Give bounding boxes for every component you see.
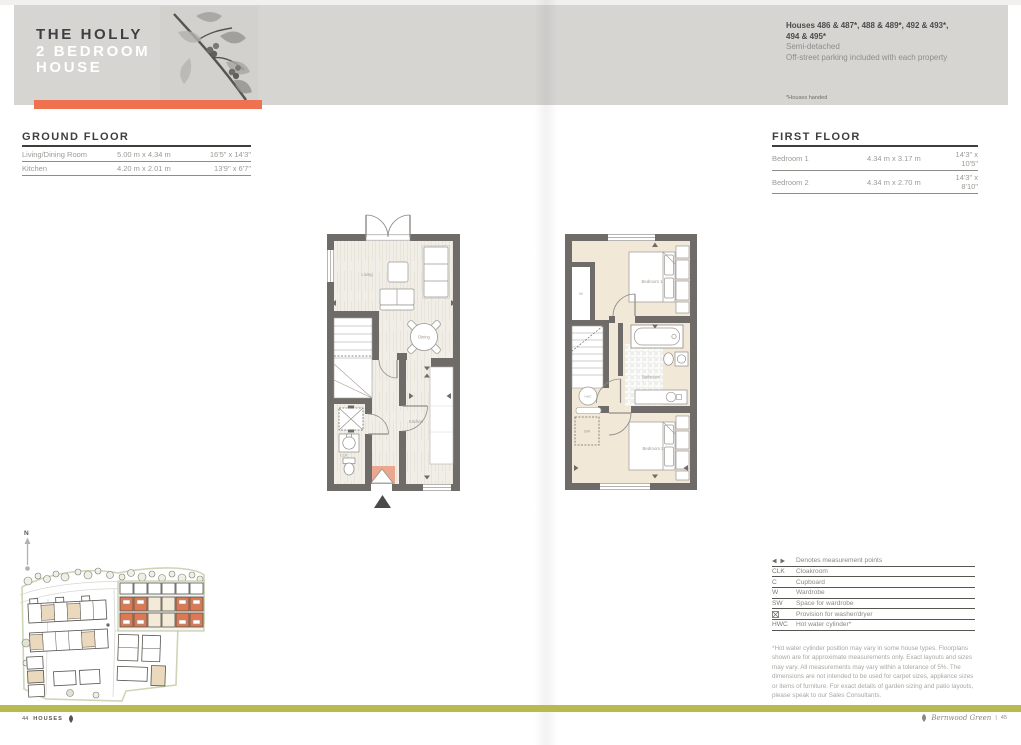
coffee-table xyxy=(388,262,408,282)
kitchen-label: Kitchen xyxy=(409,419,424,424)
header-accent-bar xyxy=(34,100,262,109)
legend-label: Hot water cylinder* xyxy=(796,621,851,628)
washer-dryer-icon xyxy=(772,611,796,618)
leaf-ornament-icon xyxy=(68,715,74,723)
brochure-page: THE HOLLY 2 BEDROOM HOUSE Houses 486 xyxy=(0,0,1021,745)
legend-label: Cupboard xyxy=(796,579,825,586)
legend: Denotes measurement points CLK Cloakroom… xyxy=(772,556,975,631)
room-metric: 4.34 m x 3.17 m xyxy=(867,154,939,163)
first-floor-spec: FIRST FLOOR Bedroom 1 4.34 m x 3.17 m 14… xyxy=(772,131,978,194)
sofa xyxy=(380,289,414,310)
bed-1 xyxy=(629,252,675,302)
toilet xyxy=(664,352,688,366)
legend-symbol: HWC xyxy=(772,621,796,628)
room-imperial: 16'5" x 14'3" xyxy=(189,150,251,159)
legend-label: Cloakroom xyxy=(796,568,828,575)
stairs xyxy=(334,318,372,398)
legend-symbol: C xyxy=(772,579,796,586)
legend-row: Denotes measurement points xyxy=(772,556,975,567)
room-metric: 4.20 m x 2.01 m xyxy=(117,164,189,173)
room-name: Bedroom 1 xyxy=(772,154,867,163)
north-compass: N xyxy=(24,530,31,571)
development-name: Bernwood Green xyxy=(931,714,991,722)
ground-floor-heading: GROUND FLOOR xyxy=(22,131,251,147)
housing-cluster-holly xyxy=(118,581,204,631)
cloakroom-label: CLK xyxy=(340,453,348,458)
houses-footnote: *Houses handed xyxy=(786,95,827,101)
room-name: Bedroom 2 xyxy=(772,178,867,187)
site-plan: N xyxy=(18,523,208,705)
legend-row: Provision for washer/dryer xyxy=(772,609,975,620)
room-name: Living/Dining Room xyxy=(22,150,117,159)
houses-numbers-2: 494 & 495* xyxy=(786,32,1011,43)
bedroom2-label: Bedroom 2 xyxy=(642,446,664,451)
houses-detail-1: Semi-detached xyxy=(786,42,1011,53)
legend-row: SW Space for wardrobe xyxy=(772,599,975,610)
footer-left: 44 HOUSES xyxy=(22,715,74,723)
legend-label: Space for wardrobe xyxy=(796,600,854,607)
housing-cluster-left xyxy=(24,595,111,697)
houses-numbers-1: Houses 486 & 487*, 488 & 489*, 492 & 493… xyxy=(786,21,1011,32)
room-metric: 5.00 m x 4.34 m xyxy=(117,150,189,159)
bedroom1-label: Bedroom 1 xyxy=(641,279,663,284)
north-label: N xyxy=(24,530,29,537)
legend-symbol: W xyxy=(772,589,796,596)
cloakroom-basin xyxy=(339,434,359,452)
page-number-right: 45 xyxy=(1001,715,1007,721)
first-floor-plan: HWC SW xyxy=(565,226,697,496)
ground-floor-spec: GROUND FLOOR Living/Dining Room 5.00 m x… xyxy=(22,131,251,176)
footer-right: Bernwood Green | 45 xyxy=(921,714,1007,722)
cloakroom-toilet xyxy=(343,458,355,475)
measurement-arrows-icon xyxy=(772,558,796,564)
housing-cluster-centre xyxy=(117,634,167,686)
table-row: Bedroom 2 4.34 m x 2.70 m 14'3" x 8'10" xyxy=(772,171,978,195)
house-type-subtitle-2: HOUSE xyxy=(36,60,150,77)
entrance-marker xyxy=(374,495,391,508)
legend-label: Denotes measurement points xyxy=(796,557,882,564)
table-row: Bedroom 1 4.34 m x 3.17 m 14'3" x 10'5" xyxy=(772,147,978,171)
washer-dryer-space xyxy=(339,406,363,433)
house-type-subtitle-1: 2 BEDROOM xyxy=(36,44,150,61)
table-row: Living/Dining Room 5.00 m x 4.34 m 16'5"… xyxy=(22,147,251,162)
living-label: Living xyxy=(361,272,373,277)
disclaimer-text: *Hot water cylinder position may vary in… xyxy=(772,644,977,701)
page-fold-shadow xyxy=(534,0,558,745)
page-title: THE HOLLY 2 BEDROOM HOUSE xyxy=(36,27,150,77)
room-metric: 4.34 m x 2.70 m xyxy=(867,178,939,187)
wardrobe-label: W xyxy=(579,291,583,296)
room-name: Kitchen xyxy=(22,164,117,173)
first-floor-heading: FIRST FLOOR xyxy=(772,131,978,147)
storage-unit xyxy=(423,246,450,299)
legend-label: Provision for washer/dryer xyxy=(796,611,873,618)
ground-floor-plan: Living Dining Kitchen CLK xyxy=(327,206,460,508)
header-band: THE HOLLY 2 BEDROOM HOUSE Houses 486 xyxy=(14,5,1008,105)
legend-row: CLK Cloakroom xyxy=(772,567,975,578)
dining-label: Dining xyxy=(418,335,430,340)
legend-row: HWC Hot water cylinder* xyxy=(772,620,975,631)
legend-row: W Wardrobe xyxy=(772,588,975,599)
stairs xyxy=(572,326,603,388)
room-imperial: 13'9" x 6'7" xyxy=(189,164,251,173)
basin-vanity xyxy=(635,390,687,404)
holly-illustration xyxy=(160,6,258,105)
footer-divider: | xyxy=(995,715,996,721)
footer-accent-bar xyxy=(0,705,1021,712)
footer-section-label: HOUSES xyxy=(33,716,63,722)
table-row: Kitchen 4.20 m x 2.01 m 13'9" x 6'7" xyxy=(22,162,251,177)
house-type-title: THE HOLLY xyxy=(36,27,150,44)
legend-symbol: CLK xyxy=(772,568,796,575)
legend-label: Wardrobe xyxy=(796,589,825,596)
page-number-left: 44 xyxy=(22,716,28,722)
kitchen-worktop xyxy=(430,367,453,464)
legend-row: C Cupboard xyxy=(772,577,975,588)
room-imperial: 14'3" x 10'5" xyxy=(939,150,978,168)
legend-symbol: SW xyxy=(772,600,796,607)
leaf-ornament-icon xyxy=(921,714,927,722)
bathroom-label: Bathroom xyxy=(642,375,660,380)
sw-label: SW xyxy=(584,429,591,434)
houses-detail-2: Off-street parking included with each pr… xyxy=(786,53,1011,64)
french-doors xyxy=(366,215,410,240)
room-imperial: 14'3" x 8'10" xyxy=(939,173,978,191)
houses-info: Houses 486 & 487*, 488 & 489*, 492 & 493… xyxy=(786,21,1011,63)
hwc-label: HWC xyxy=(584,395,592,399)
bathtub xyxy=(631,325,683,348)
